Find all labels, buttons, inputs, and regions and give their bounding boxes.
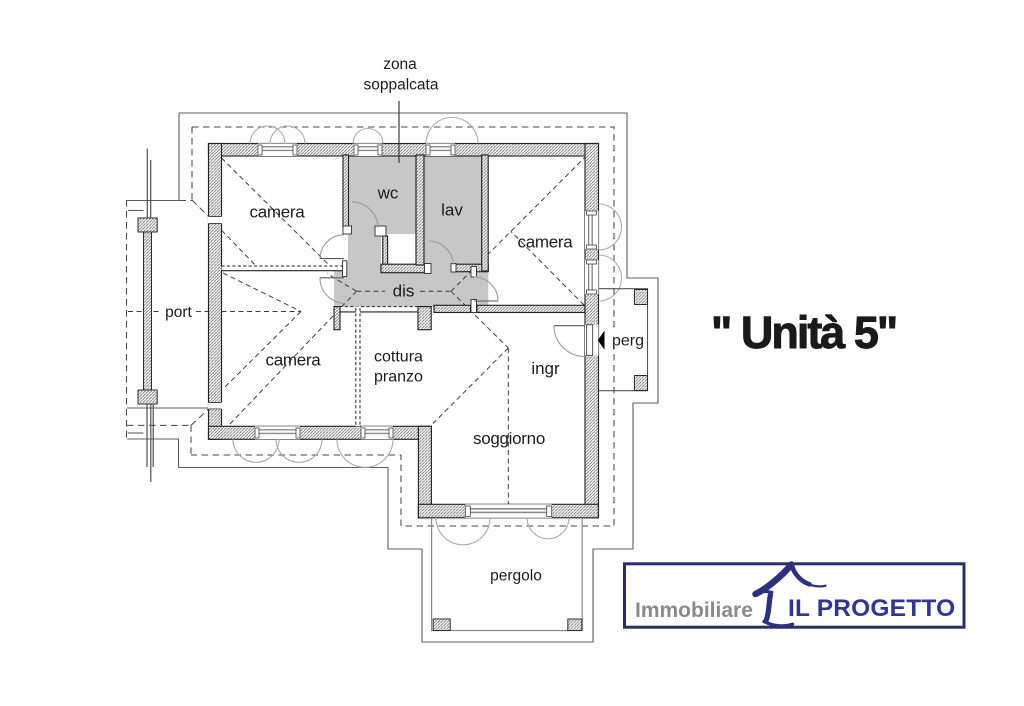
svg-text:soggiorno: soggiorno bbox=[473, 429, 545, 448]
svg-text:camera: camera bbox=[250, 203, 306, 222]
svg-text:pergolo: pergolo bbox=[490, 568, 542, 585]
svg-text:dis: dis bbox=[393, 282, 415, 301]
svg-text:pranzo: pranzo bbox=[374, 369, 423, 386]
svg-text:ingr: ingr bbox=[531, 359, 560, 378]
svg-text:lav: lav bbox=[441, 201, 463, 220]
svg-text:camera: camera bbox=[518, 233, 574, 252]
svg-text:zona: zona bbox=[383, 56, 417, 73]
svg-text:camera: camera bbox=[266, 351, 322, 370]
svg-text:cottura: cottura bbox=[374, 349, 423, 366]
svg-text:wc: wc bbox=[377, 184, 399, 203]
svg-text:port: port bbox=[165, 304, 192, 321]
svg-text:Immobiliare: Immobiliare bbox=[635, 599, 753, 622]
svg-text:soppalcata: soppalcata bbox=[364, 77, 439, 94]
svg-text:perg: perg bbox=[612, 333, 644, 350]
svg-text:IL PROGETTO: IL PROGETTO bbox=[788, 595, 955, 622]
svg-text:" Unità 5": " Unità 5" bbox=[711, 307, 896, 358]
